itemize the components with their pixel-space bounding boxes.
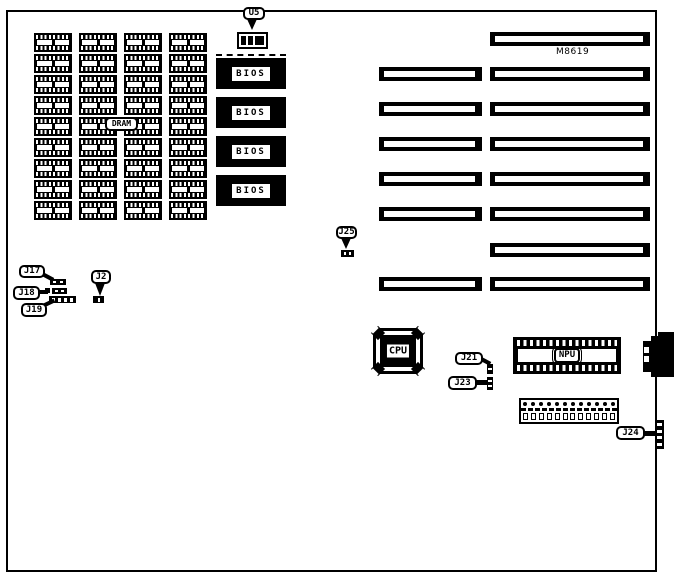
power-pin	[539, 402, 543, 406]
npu-label: NPU	[554, 348, 580, 363]
expansion-slot-left	[379, 102, 482, 116]
dram-chip	[34, 201, 72, 220]
j23-label: J23	[448, 376, 477, 390]
npu-chip: NPU	[513, 337, 621, 374]
power-pin	[531, 402, 535, 406]
power-pin	[611, 402, 615, 406]
u5-component	[237, 32, 268, 49]
board-id-label: M8619	[556, 47, 589, 57]
j21-connector	[487, 364, 493, 374]
j18-connector-block	[45, 288, 50, 293]
j24-label: J24	[616, 426, 645, 440]
j2-label-text: J2	[96, 273, 107, 282]
bios-label: BIOS	[232, 67, 270, 81]
power-pin	[523, 402, 527, 406]
u5-block	[241, 36, 246, 45]
power-cell	[539, 413, 544, 420]
dram-chip	[124, 201, 162, 220]
power-cell	[578, 413, 583, 420]
expansion-slot-left	[379, 137, 482, 151]
power-connector	[519, 398, 619, 424]
j25-label-text: J25	[338, 228, 354, 237]
bios-chip: BIOS	[216, 58, 286, 89]
j25-connector	[341, 250, 354, 257]
j18-label: J18	[13, 286, 40, 300]
u5-label: U5	[243, 7, 265, 20]
dram-chip	[124, 54, 162, 73]
power-cell	[555, 413, 560, 420]
j23-label-text: J23	[454, 379, 470, 388]
dram-chip	[169, 117, 207, 136]
cpu-chip: CPU	[373, 328, 423, 374]
dram-chip	[79, 159, 117, 178]
expansion-slot-right	[490, 137, 650, 151]
j24-connector	[655, 420, 664, 449]
dram-chip	[34, 159, 72, 178]
npu-pins-top	[517, 340, 617, 346]
j21-label: J21	[455, 352, 483, 365]
u5-block	[248, 36, 253, 45]
expansion-slot-left	[379, 277, 482, 291]
dram-chip	[34, 54, 72, 73]
j25-label: J25	[336, 226, 357, 239]
dram-chip	[79, 33, 117, 52]
bios-label: BIOS	[232, 184, 270, 198]
dram-chip	[34, 75, 72, 94]
expansion-slot-left	[379, 172, 482, 186]
keyboard-connector-pin	[644, 347, 649, 353]
j23-connector	[487, 377, 493, 390]
power-pin	[595, 402, 599, 406]
j18-label-text: J18	[18, 289, 34, 298]
expansion-slot-right	[490, 102, 650, 116]
j18-connector	[52, 288, 67, 294]
j19-label-text: J19	[26, 306, 42, 315]
power-cell	[594, 413, 599, 420]
dram-chip	[169, 33, 207, 52]
dram-chip	[34, 117, 72, 136]
power-cell	[586, 413, 591, 420]
j2-pointer	[95, 283, 105, 296]
dram-chip	[169, 159, 207, 178]
expansion-slot-left	[379, 207, 482, 221]
bios-column: BIOSBIOSBIOSBIOS	[216, 58, 286, 214]
npu-pins-bottom	[517, 365, 617, 371]
dram-chip	[124, 96, 162, 115]
dram-chip	[124, 159, 162, 178]
dram-chip	[124, 33, 162, 52]
dram-chip	[79, 54, 117, 73]
dram-chip	[169, 75, 207, 94]
power-pin	[587, 402, 591, 406]
power-cell	[523, 413, 528, 420]
j2-label: J2	[91, 270, 111, 284]
npu-body: NPU	[517, 348, 617, 363]
j19-label: J19	[21, 303, 47, 317]
dram-chip	[79, 75, 117, 94]
dram-chip	[169, 54, 207, 73]
dram-chip	[124, 180, 162, 199]
dram-chip	[34, 96, 72, 115]
power-pin	[579, 402, 583, 406]
keyboard-connector-pin	[644, 356, 649, 362]
dram-chip	[169, 138, 207, 157]
bios-label: BIOS	[232, 145, 270, 159]
u5-pointer	[247, 19, 257, 30]
dram-chip	[79, 96, 117, 115]
bios-label: BIOS	[232, 106, 270, 120]
bios-chip: BIOS	[216, 136, 286, 167]
bios-chip: BIOS	[216, 175, 286, 206]
j17-label: J17	[19, 265, 45, 278]
dram-chip	[34, 138, 72, 157]
bios-socket-dashed-line	[216, 54, 286, 56]
power-pin	[547, 402, 551, 406]
expansion-slot-right	[490, 32, 650, 46]
u5-block	[255, 36, 264, 45]
j17-label-text: J17	[24, 267, 40, 276]
expansion-slot-right	[490, 277, 650, 291]
expansion-slot-right	[490, 207, 650, 221]
expansion-slot-left	[379, 67, 482, 81]
power-pin	[603, 402, 607, 406]
u5-label-text: U5	[249, 9, 260, 18]
dram-label-text: DRAM	[112, 120, 131, 128]
power-pin	[571, 402, 575, 406]
power-cell	[602, 413, 607, 420]
expansion-slot-right	[490, 67, 650, 81]
bios-chip: BIOS	[216, 97, 286, 128]
expansion-slot-right	[490, 243, 650, 257]
expansion-slot-right	[490, 172, 650, 186]
power-cell	[547, 413, 552, 420]
dram-chip	[34, 33, 72, 52]
power-pin	[563, 402, 567, 406]
dram-chip	[169, 96, 207, 115]
power-cell	[531, 413, 536, 420]
j25-pointer	[341, 238, 351, 249]
j2-connector	[93, 296, 104, 303]
power-cell	[610, 413, 615, 420]
dram-chip	[79, 201, 117, 220]
dram-chip	[169, 180, 207, 199]
j21-label-text: J21	[461, 354, 477, 363]
dram-chip	[79, 138, 117, 157]
dram-chip	[124, 138, 162, 157]
power-connector-pin-row	[521, 400, 617, 408]
power-cell	[570, 413, 575, 420]
motherboard-diagram: DRAM U5 BIOSBIOSBIOSBIOS M8619 J25 J17 J…	[0, 0, 674, 582]
dram-chip	[79, 180, 117, 199]
dram-chip	[169, 201, 207, 220]
dram-label: DRAM	[105, 117, 138, 131]
j24-label-text: J24	[622, 429, 638, 438]
dram-chip	[124, 75, 162, 94]
power-connector-cell-row	[521, 411, 617, 422]
cpu-label: CPU	[387, 345, 409, 358]
power-cell	[563, 413, 568, 420]
power-pin	[555, 402, 559, 406]
dram-chip	[34, 180, 72, 199]
